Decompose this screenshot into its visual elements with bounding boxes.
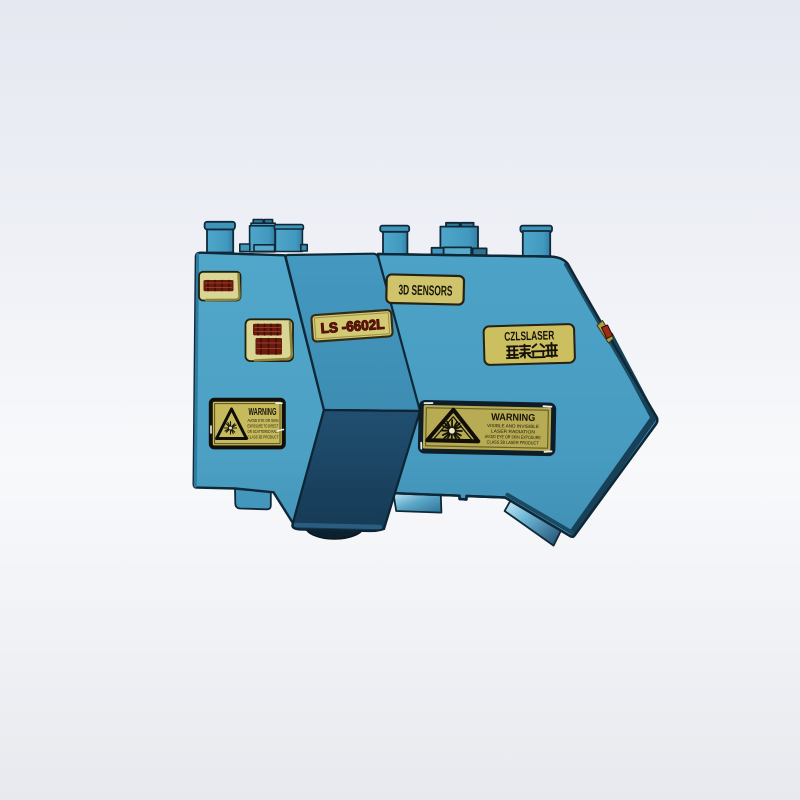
svg-text:CLASS 3B PRODUCT: CLASS 3B PRODUCT xyxy=(248,435,279,440)
svg-text:OR SCATTERED RAD.: OR SCATTERED RAD. xyxy=(248,429,279,434)
svg-text:WARNING: WARNING xyxy=(249,406,277,418)
svg-text:WARNING: WARNING xyxy=(491,412,535,424)
svg-text:EXPOSURE TO DIRECT: EXPOSURE TO DIRECT xyxy=(248,424,279,429)
svg-text:AVOID EYE OR SKIN: AVOID EYE OR SKIN xyxy=(248,418,279,423)
svg-text:3D SENSORS: 3D SENSORS xyxy=(398,281,452,298)
svg-text:CZLSLASER: CZLSLASER xyxy=(504,328,554,343)
